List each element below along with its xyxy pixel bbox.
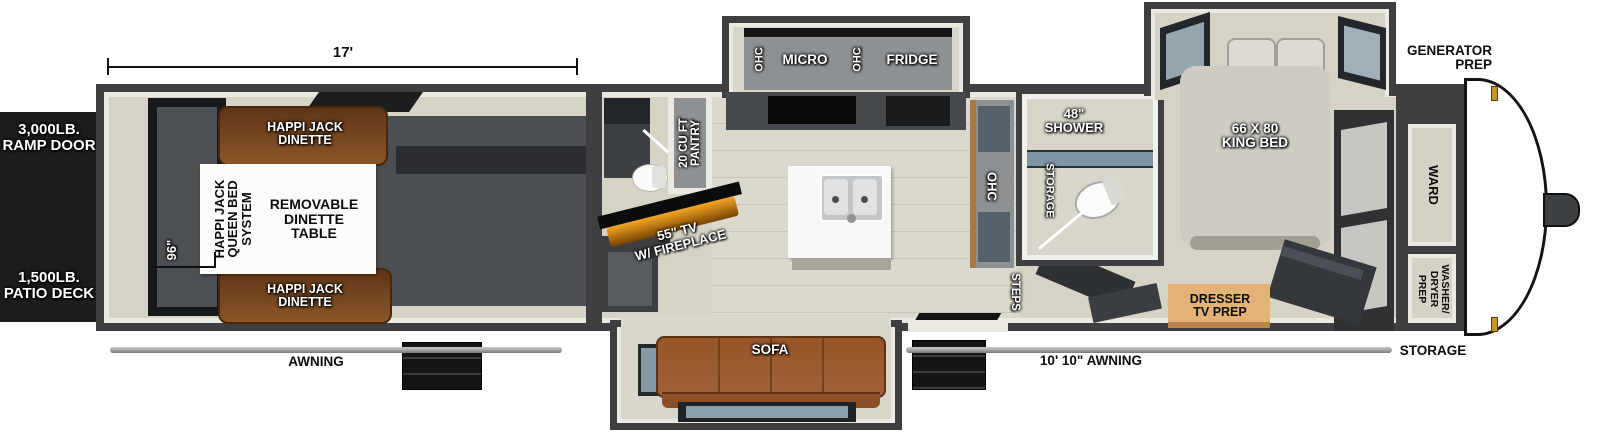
cabinet-wood-trim xyxy=(970,100,976,268)
hitch-pin xyxy=(1543,193,1580,227)
sink-drain-left xyxy=(832,196,839,203)
garage-rear-wall xyxy=(586,92,602,331)
dinette-table-label: REMOVABLE DINETTE TABLE xyxy=(258,184,370,254)
garage-length-dimension-line xyxy=(108,66,578,68)
generator-prep-label: GENERATOR PREP xyxy=(1366,42,1492,74)
king-bed xyxy=(1180,66,1330,248)
front-wall-mid xyxy=(1404,246,1464,254)
shower-label: 48" SHOWER xyxy=(1030,104,1118,138)
cabinet-panel-top xyxy=(978,106,1010,152)
king-bed-label: 66 X 80 KING BED xyxy=(1193,118,1317,154)
clearance-light-bottom xyxy=(1491,317,1498,332)
front-wall-top xyxy=(1404,92,1464,124)
sofa-window-rear-glass xyxy=(686,406,848,418)
half-bath-toilet-tank xyxy=(652,166,666,188)
cabinet-panel-bottom xyxy=(978,212,1010,262)
fridge-label: FRIDGE xyxy=(876,53,948,68)
wardrobe-mirror-top xyxy=(1341,122,1387,216)
awning-left-label: AWNING xyxy=(272,354,360,370)
sink-faucet xyxy=(847,214,856,223)
ohc-left-label: OHC xyxy=(753,40,768,80)
awning-bar-left xyxy=(110,347,562,353)
ramp-door-label: 3,000LB. RAMP DOOR xyxy=(0,120,98,156)
garage-wall-shadow xyxy=(396,146,586,174)
awning-right-label: 10' 10" AWNING xyxy=(1026,353,1156,369)
sink-drain-right xyxy=(861,196,868,203)
kitchen-island-base xyxy=(792,258,891,270)
washer-dryer-label: WASHER/ DRYER PREP xyxy=(1415,256,1451,322)
dresser-label: DRESSER TV PREP xyxy=(1176,290,1264,322)
sofa-label: SOFA xyxy=(700,342,840,358)
front-storage-label: STORAGE xyxy=(1394,343,1472,359)
dinette-bottom-label: HAPPI JACK DINETTE xyxy=(240,280,370,312)
bathroom-storage-label: STORAGE xyxy=(1042,155,1057,227)
floorplan: 17' 3,000LB. RAMP DOOR 1,500LB. PATIO DE… xyxy=(0,0,1600,447)
kitchen-cabinet-top-trim xyxy=(744,28,952,37)
steps-label: STEPS xyxy=(1007,263,1023,321)
clearance-light-top xyxy=(1491,86,1498,101)
cooktop xyxy=(768,96,856,124)
ward-label: WARD xyxy=(1424,154,1442,216)
dinette-top-label: HAPPI JACK DINETTE xyxy=(240,118,370,150)
half-bath-cabinet xyxy=(604,98,650,124)
sofa-window-left-glass xyxy=(641,348,656,392)
microwave-label: MICRO xyxy=(770,53,840,68)
pantry-label: 20 CU FT PANTRY xyxy=(675,95,705,191)
ohc-island-label: OHC xyxy=(984,159,1001,215)
garage-width-dimension-tick xyxy=(214,252,216,268)
garage-length-label: 17' xyxy=(108,44,578,62)
front-cap xyxy=(1464,78,1548,336)
entry-doorway xyxy=(908,320,1008,332)
ohc-mid-label: OHC xyxy=(851,40,866,80)
refrigerator xyxy=(886,96,950,126)
patio-deck-label: 1,500LB. PATIO DECK xyxy=(0,268,98,304)
dresser-front-edge xyxy=(1168,322,1270,328)
garage-width-dimension-line xyxy=(152,266,216,268)
front-divider-wall xyxy=(1396,92,1408,331)
